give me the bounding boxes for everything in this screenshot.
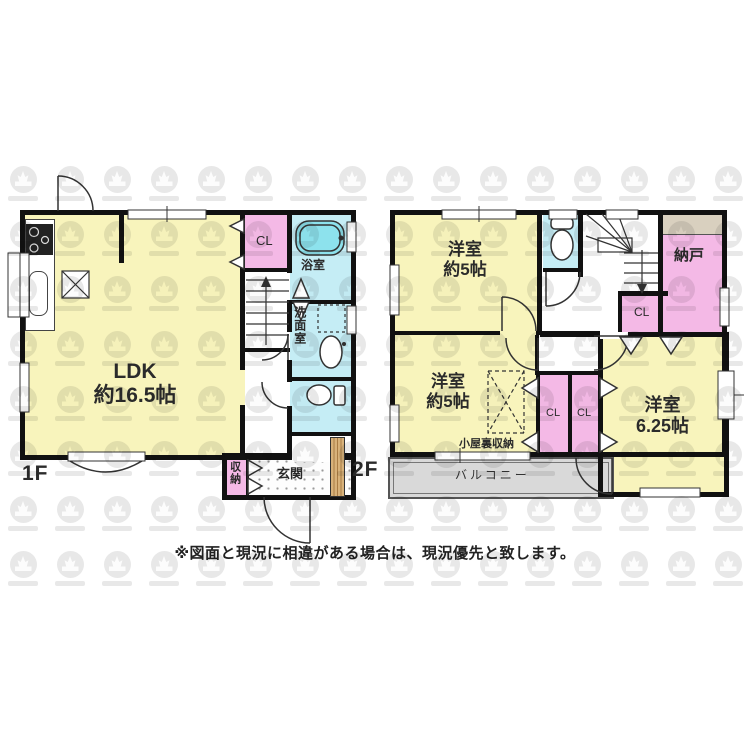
washing-machine-icon: [318, 305, 345, 332]
label-entrance: 玄関: [277, 467, 303, 482]
label-closet-1f: CL: [256, 234, 273, 249]
stairs-up-arrow: [261, 276, 271, 287]
label-storeroom: 納戸: [674, 247, 704, 264]
floor-label-2f: 2F: [352, 458, 379, 482]
toilet-2f-icon: [551, 218, 573, 260]
door-arc-ldk-bottom: [70, 461, 142, 472]
bathtub-icon: [296, 221, 344, 255]
door-arc-toilet-1f: [262, 382, 288, 408]
label-ldk: LDK 約16.5帖: [55, 360, 215, 408]
door-arc-toilet-2f: [546, 272, 580, 306]
label-balcony: バルコニー: [455, 469, 530, 483]
door-arc-entrance: [264, 497, 310, 543]
label-closet-a: CL: [546, 407, 560, 420]
label-washroom: 洗面室: [292, 306, 306, 358]
stove-burners-icon: [30, 228, 49, 253]
door-arc-balcony: [576, 458, 612, 494]
stairs-2f: [586, 214, 658, 290]
door-arc-western1: [502, 297, 536, 331]
stairs-1f: [246, 280, 289, 345]
label-bath: 浴室: [301, 259, 325, 273]
label-attic: 小屋裏収納: [459, 438, 514, 451]
label-western2: 洋室 約5帖: [398, 372, 498, 411]
windows: [8, 206, 744, 497]
label-western1: 洋室 約5帖: [400, 240, 530, 279]
stairs-down-arrow: [637, 284, 647, 294]
label-closet-b: CL: [577, 407, 591, 420]
label-storage-1f: 収納: [228, 461, 241, 495]
label-closet-under-stairs: CL: [634, 306, 649, 320]
disclaimer-text: ※図面と現況に相違がある場合は、現況優先と致します。: [0, 542, 750, 563]
floorplan-canvas: 1F 2F LDK 約16.5帖 CL 浴室 洗面室 収納 玄関 洋室 約5帖 …: [0, 0, 750, 750]
door-arc-ldk-top: [58, 176, 93, 211]
label-western3: 洋室 6.25帖: [605, 395, 720, 436]
wash-basin-icon: [320, 336, 346, 368]
door-arc-western2: [506, 338, 538, 370]
floor-label-1f: 1F: [22, 462, 49, 486]
kitchen-hatch-icon: [62, 271, 89, 298]
toilet-1f-icon: [307, 385, 345, 405]
